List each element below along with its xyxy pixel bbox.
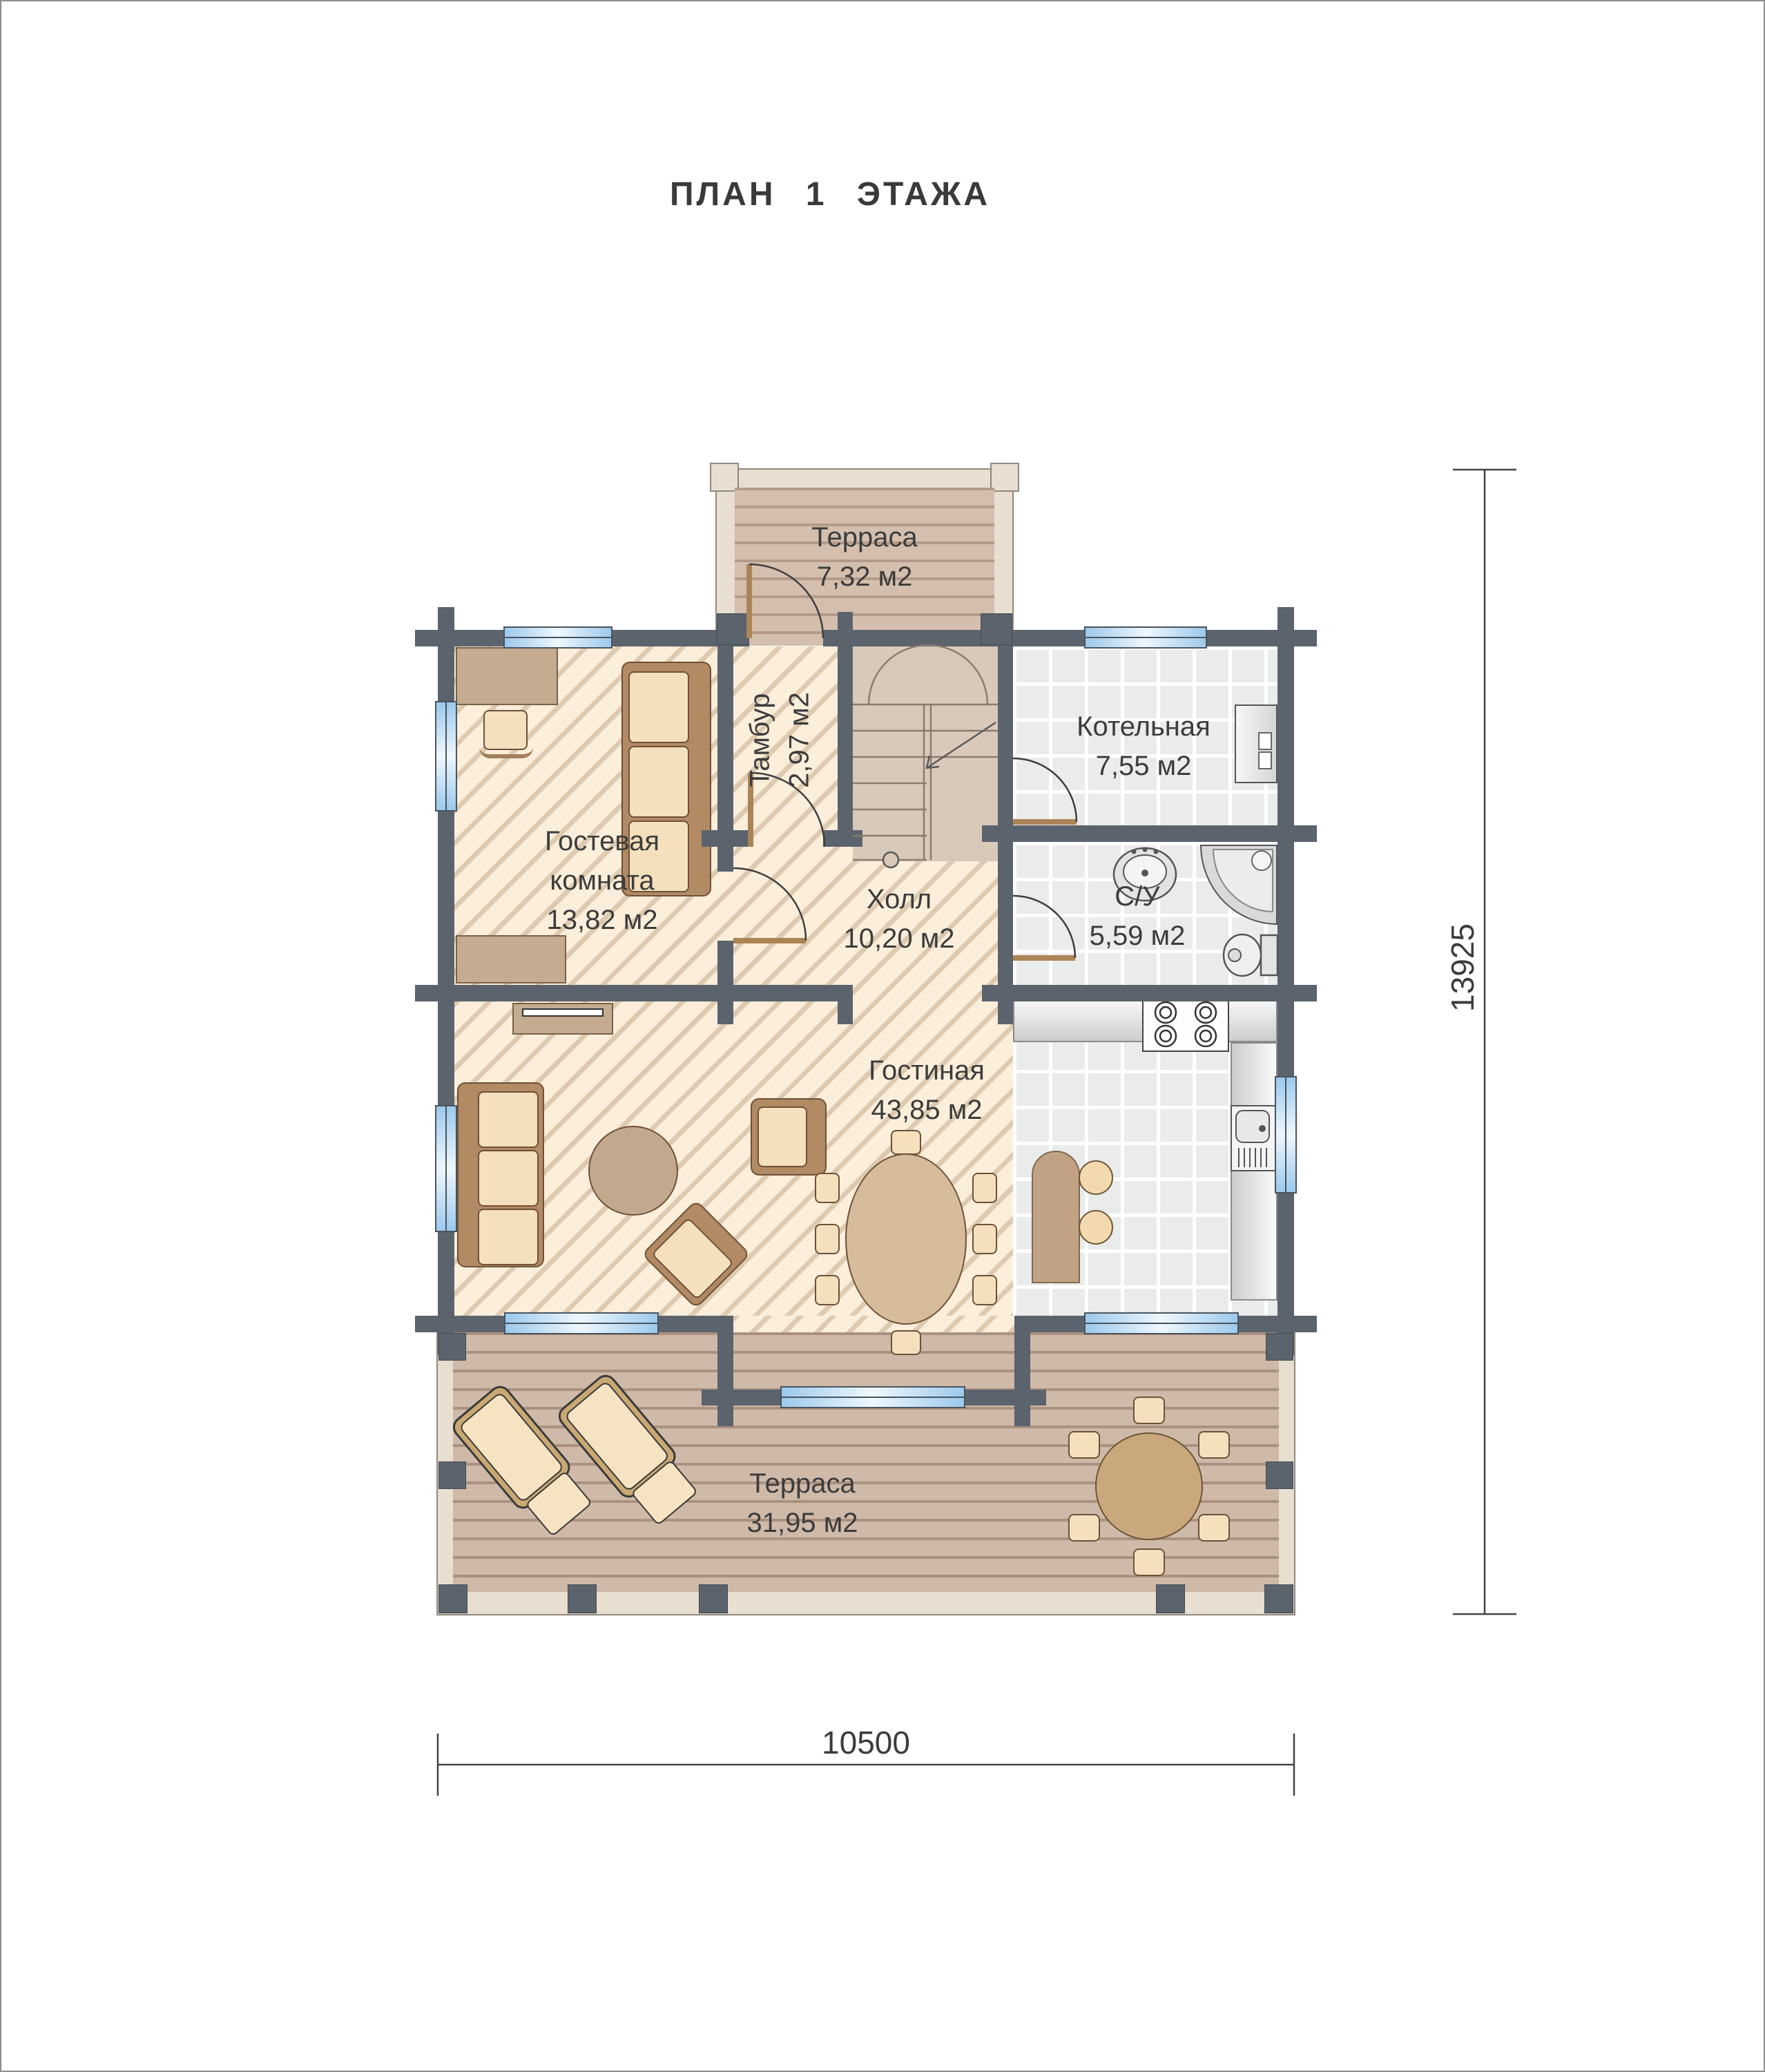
plan-linework: [1, 1, 1765, 2072]
floor-plan-canvas: ПЛАН 1 ЭТАЖА Терраса 7,32 м2 Тамбур 2,97…: [0, 0, 1765, 2072]
room-label-living: Гостиная 43,85 м2: [795, 1051, 1058, 1130]
dimension-width: 10500: [797, 1724, 935, 1761]
kitchen-sink: [1236, 1111, 1269, 1167]
stove-burners: [1155, 1002, 1216, 1046]
room-label-terrace-bottom: Терраса 31,95 м2: [668, 1464, 937, 1543]
stairs-newel: [883, 852, 898, 867]
room-label-tambour: Тамбур 2,97 м2: [741, 664, 820, 816]
dimension-height: 13925: [1444, 892, 1481, 1044]
page-title: ПЛАН 1 ЭТАЖА: [581, 175, 1079, 213]
dimension-lines: [438, 470, 1516, 1796]
room-label-boiler: Котельная 7,55 м2: [1015, 707, 1272, 786]
room-label-bathroom: С/У 5,59 м2: [1023, 877, 1251, 956]
room-label-hall: Холл 10,20 м2: [782, 880, 1016, 959]
room-label-terrace-top: Терраса 7,32 м2: [730, 518, 999, 597]
stairs-direction: [927, 722, 996, 768]
stairs-treads: [853, 645, 998, 860]
room-label-guest: Гостевая комната 13,82 м2: [485, 822, 720, 940]
